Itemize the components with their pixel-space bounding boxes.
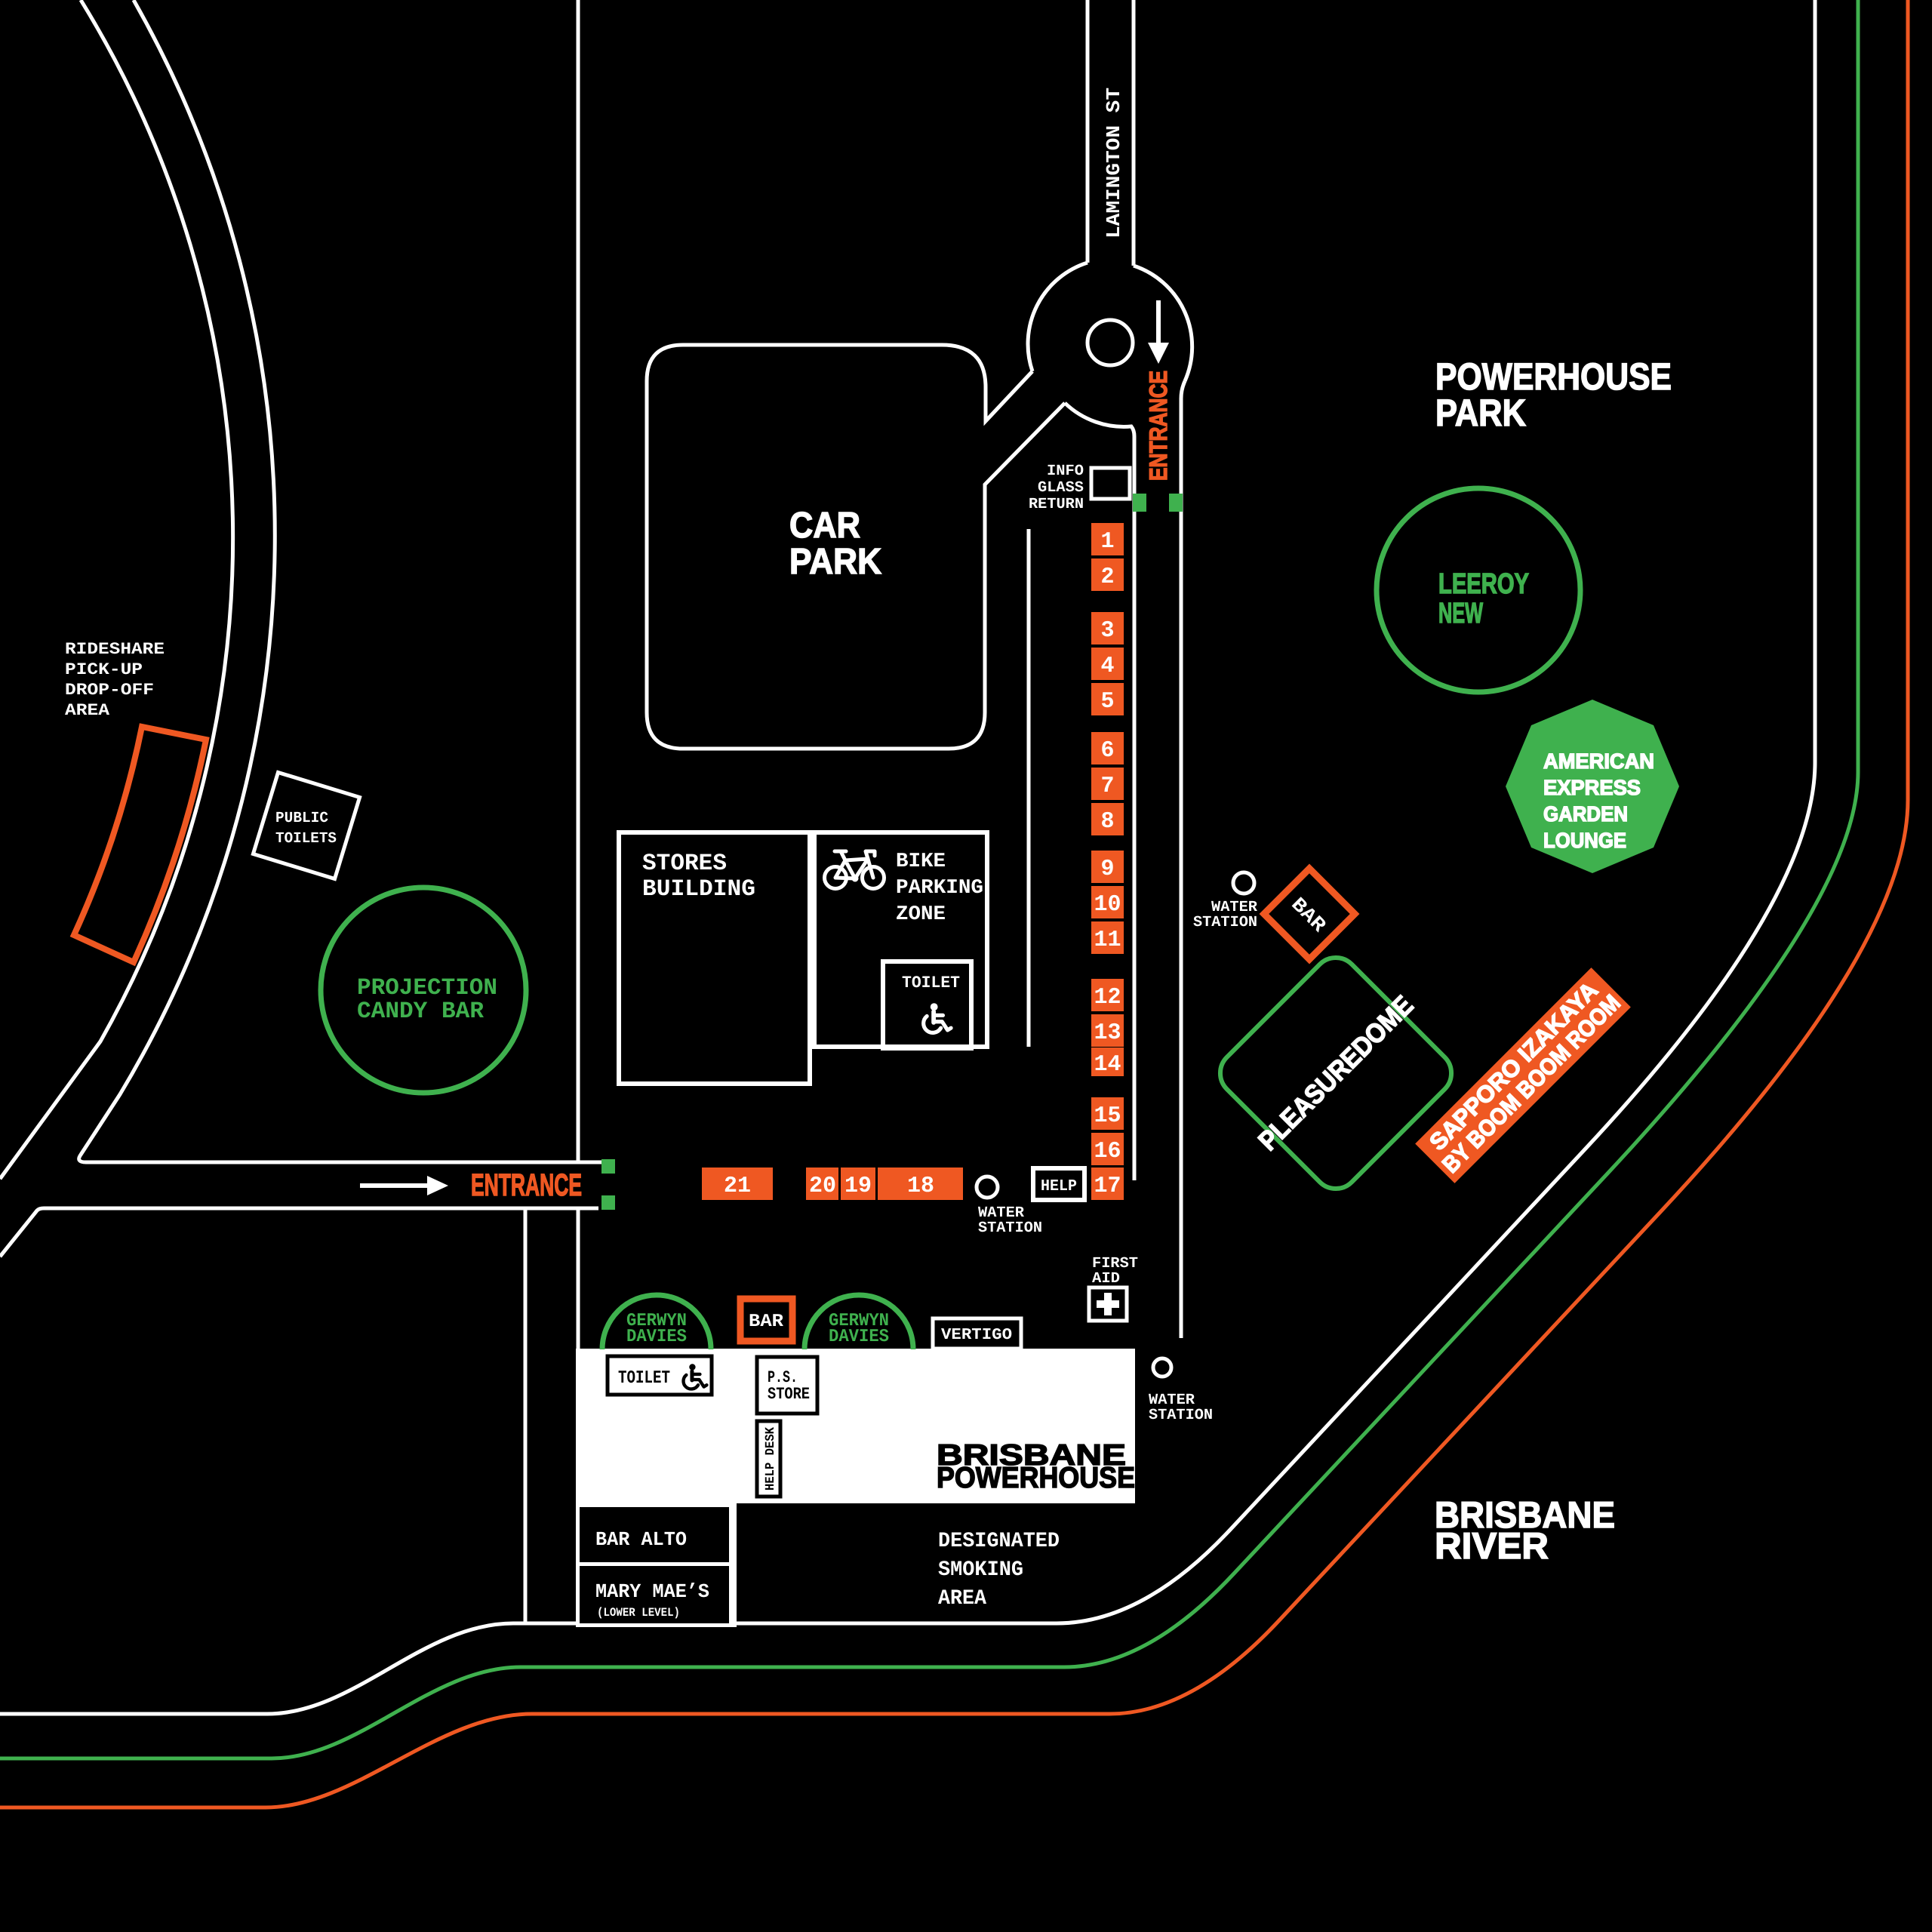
svg-text:STORES: STORES (642, 851, 727, 877)
svg-text:11: 11 (1094, 928, 1121, 953)
svg-text:18: 18 (907, 1174, 934, 1199)
svg-text:19: 19 (844, 1174, 872, 1199)
svg-text:ENTRANCE: ENTRANCE (1144, 371, 1172, 481)
svg-text:9: 9 (1100, 857, 1114, 882)
svg-text:21: 21 (724, 1174, 751, 1199)
svg-text:GLASS: GLASS (1038, 479, 1084, 497)
svg-text:16: 16 (1094, 1139, 1121, 1164)
svg-text:4: 4 (1100, 654, 1114, 679)
svg-text:LAMINGTON ST: LAMINGTON ST (1103, 88, 1125, 238)
svg-text:BIKE: BIKE (896, 851, 946, 873)
svg-text:CANDY BAR: CANDY BAR (357, 998, 484, 1025)
svg-text:CAR: CAR (789, 506, 860, 546)
svg-text:BUILDING: BUILDING (642, 876, 755, 903)
svg-text:STORE: STORE (768, 1385, 810, 1404)
svg-text:DAVIES: DAVIES (626, 1327, 687, 1347)
svg-text:PICK-UP: PICK-UP (65, 660, 143, 679)
svg-text:RIDESHARE: RIDESHARE (65, 640, 165, 659)
svg-text:2: 2 (1100, 565, 1114, 590)
svg-text:AMERICAN: AMERICAN (1543, 749, 1654, 773)
svg-text:20: 20 (809, 1174, 836, 1199)
svg-text:MARY MAE’S: MARY MAE’S (595, 1580, 709, 1603)
svg-text:7: 7 (1100, 774, 1114, 799)
svg-text:6: 6 (1100, 738, 1114, 764)
svg-text:STATION: STATION (1149, 1407, 1213, 1424)
svg-text:RIVER: RIVER (1435, 1526, 1549, 1567)
svg-text:1: 1 (1100, 529, 1114, 555)
svg-text:8: 8 (1100, 809, 1114, 835)
svg-text:PARKING: PARKING (896, 877, 983, 900)
svg-text:BAR: BAR (749, 1312, 784, 1332)
svg-text:STATION: STATION (1193, 914, 1257, 931)
svg-text:SMOKING: SMOKING (938, 1558, 1023, 1582)
svg-text:5: 5 (1100, 689, 1114, 715)
svg-text:AREA: AREA (938, 1587, 986, 1611)
svg-text:AREA: AREA (65, 701, 110, 720)
svg-text:RETURN: RETURN (1029, 496, 1084, 513)
svg-text:PARK: PARK (789, 542, 881, 582)
svg-text:GARDEN: GARDEN (1543, 802, 1628, 826)
svg-text:(LOWER LEVEL): (LOWER LEVEL) (597, 1606, 680, 1620)
svg-text:15: 15 (1094, 1103, 1121, 1129)
svg-text:ENTRANCE: ENTRANCE (471, 1168, 582, 1202)
svg-text:LOUNGE: LOUNGE (1543, 829, 1626, 852)
svg-text:12: 12 (1094, 985, 1121, 1011)
svg-text:14: 14 (1094, 1052, 1121, 1078)
svg-text:TOILET: TOILET (902, 974, 960, 992)
svg-text:HELP: HELP (1041, 1178, 1077, 1195)
svg-text:AID: AID (1092, 1270, 1120, 1287)
svg-text:TOILETS: TOILETS (275, 830, 337, 848)
svg-text:INFO: INFO (1047, 463, 1084, 480)
svg-text:EXPRESS: EXPRESS (1543, 776, 1641, 799)
svg-text:13: 13 (1094, 1020, 1121, 1046)
svg-text:ZONE: ZONE (896, 903, 946, 926)
svg-text:10: 10 (1094, 892, 1121, 918)
svg-text:DESIGNATED: DESIGNATED (938, 1530, 1060, 1553)
svg-text:DAVIES: DAVIES (829, 1327, 889, 1347)
svg-text:NEW: NEW (1438, 598, 1483, 629)
svg-text:TOILET: TOILET (618, 1368, 670, 1389)
svg-text:BAR ALTO: BAR ALTO (595, 1528, 687, 1551)
svg-text:HELP DESK: HELP DESK (764, 1426, 778, 1491)
svg-text:STATION: STATION (978, 1220, 1042, 1237)
svg-text:DROP-OFF: DROP-OFF (65, 681, 154, 700)
svg-text:PUBLIC: PUBLIC (275, 810, 328, 827)
svg-text:POWERHOUSE: POWERHOUSE (937, 1462, 1135, 1494)
svg-text:PROJECTION: PROJECTION (357, 975, 497, 1001)
svg-text:LEEROY: LEEROY (1438, 568, 1529, 600)
svg-text:3: 3 (1100, 618, 1114, 644)
svg-text:17: 17 (1094, 1174, 1121, 1199)
svg-text:PARK: PARK (1435, 392, 1526, 434)
svg-text:VERTIGO: VERTIGO (941, 1327, 1012, 1344)
